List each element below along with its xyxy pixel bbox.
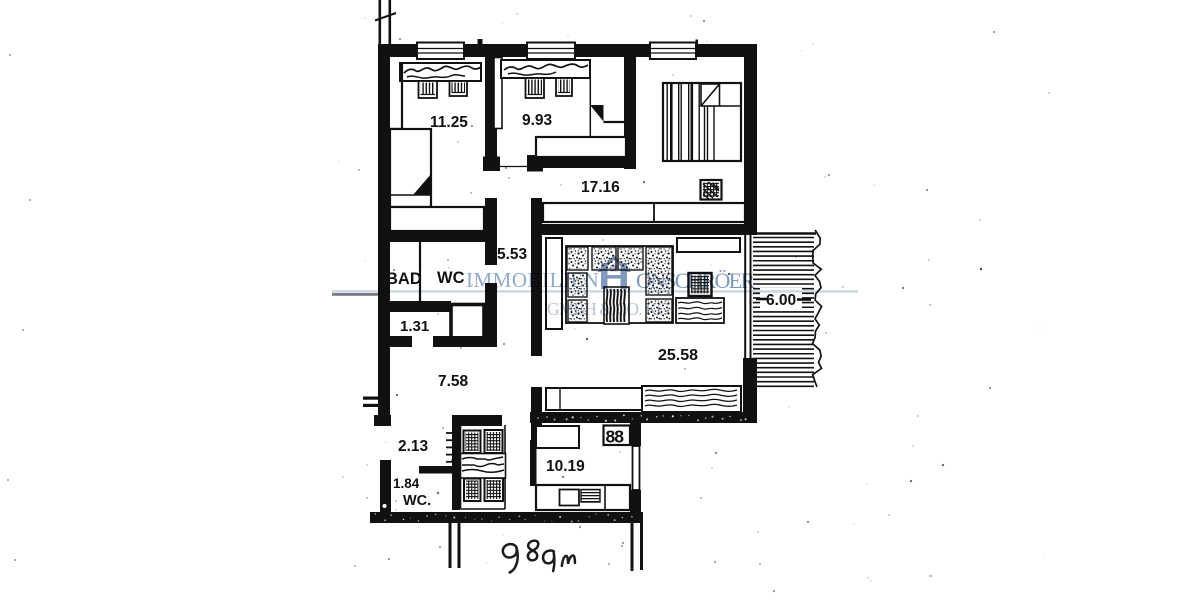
svg-text:9.93: 9.93 — [522, 112, 553, 129]
svg-text:11.25: 11.25 — [430, 114, 468, 131]
svg-text:2.13: 2.13 — [398, 438, 429, 455]
svg-text:BAD: BAD — [386, 270, 422, 288]
svg-text:5.53: 5.53 — [497, 246, 528, 263]
svg-text:6.00: 6.00 — [766, 292, 796, 309]
svg-text:GMBH & CO. KG: GMBH & CO. KG — [547, 299, 670, 319]
svg-text:WC.: WC. — [403, 493, 431, 509]
svg-text:1.31: 1.31 — [400, 318, 429, 335]
svg-text:17.16: 17.16 — [581, 179, 620, 196]
svg-text:25.58: 25.58 — [658, 347, 698, 364]
svg-text:1.84: 1.84 — [393, 476, 420, 491]
svg-text:WC: WC — [437, 269, 465, 287]
svg-text:ONSCHRÖER: ONSCHRÖER — [636, 268, 755, 293]
svg-text:10.19: 10.19 — [546, 458, 585, 475]
svg-text:7.58: 7.58 — [438, 373, 469, 390]
svg-text:IMMOBILIEN: IMMOBILIEN — [466, 268, 600, 292]
svg-text:88: 88 — [606, 427, 625, 447]
